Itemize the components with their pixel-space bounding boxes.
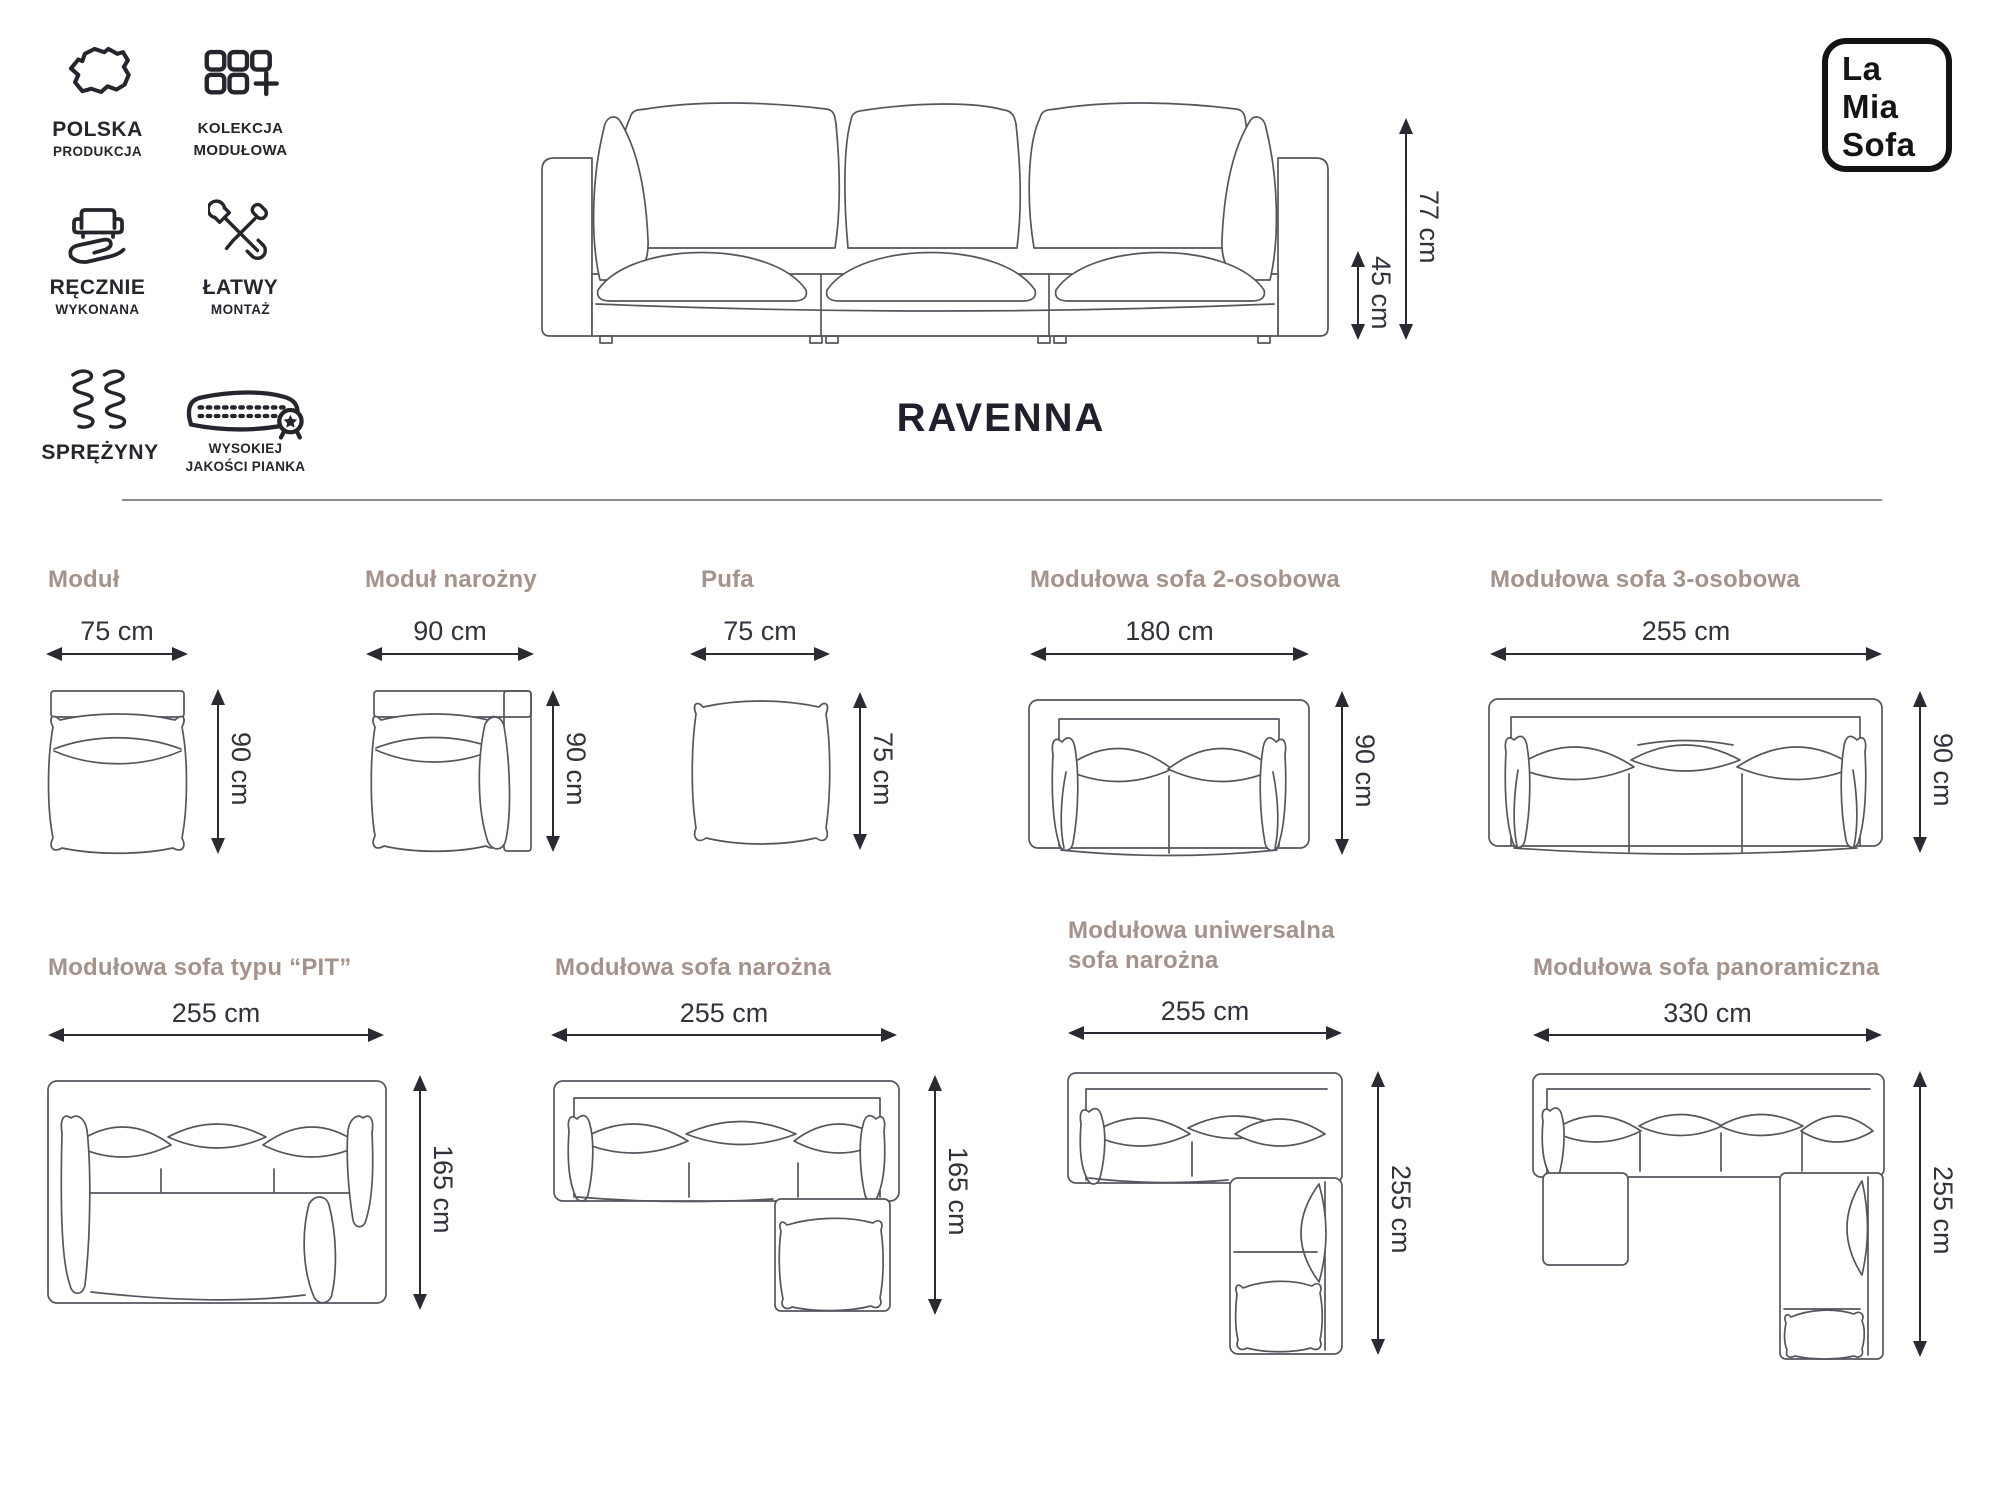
module-height-label: 165 cm (429, 1145, 456, 1234)
width-arrow (1535, 1034, 1880, 1036)
width-arrow (553, 1034, 895, 1036)
product-name: RAVENNA (851, 396, 1151, 441)
feature-label: KOLEKCJA (173, 120, 308, 137)
width-arrow (1070, 1032, 1340, 1034)
module-height-label: 90 cm (227, 732, 254, 806)
seat-height-label: 45 cm (1367, 256, 1394, 330)
module-height-label: 255 cm (1929, 1166, 1956, 1255)
height-arrow (419, 1077, 421, 1308)
brand-logo-line: Mia (1842, 88, 1946, 126)
overall-height-arrow (1405, 120, 1407, 338)
section-divider (122, 499, 1882, 501)
module-width-label: 180 cm (1032, 616, 1307, 647)
module-title: Modułowa sofa 3-osobowa (1490, 565, 1800, 595)
module-width-label: 75 cm (48, 616, 186, 647)
brand-logo-line: La (1842, 50, 1946, 88)
module-height-label: 165 cm (944, 1147, 971, 1236)
module-diagram (45, 690, 190, 857)
hand-sofa-icon (62, 198, 134, 270)
width-arrow (48, 653, 186, 655)
poland-map-icon (58, 44, 136, 114)
seat-height-arrow (1357, 253, 1359, 338)
height-arrow (1919, 1073, 1921, 1355)
module-diagram (690, 692, 833, 850)
module-width-label: 255 cm (553, 998, 895, 1029)
spec-sheet: POLSKA PRODUKCJA KOLEKCJA MODUŁOWA RĘCZN… (0, 0, 2000, 1500)
feature-label: ŁATWY (173, 276, 308, 300)
height-arrow (859, 694, 861, 848)
width-arrow (50, 1034, 382, 1036)
feature-sublabel: WYKONANA (30, 302, 165, 317)
width-arrow (692, 653, 828, 655)
module-width-label: 90 cm (368, 616, 532, 647)
height-arrow (934, 1077, 936, 1313)
module-width-label: 255 cm (1492, 616, 1880, 647)
feature-label: SPRĘŻYNY (28, 441, 172, 465)
module-title: Moduł narożny (365, 565, 537, 595)
width-arrow (1032, 653, 1307, 655)
module-grid-icon (198, 48, 282, 112)
feature-label: WYSOKIEJ (173, 441, 318, 456)
brand-logo: La Mia Sofa (1822, 38, 1952, 172)
height-arrow (1341, 693, 1343, 853)
module-title: Pufa (701, 565, 754, 595)
height-arrow (552, 692, 554, 850)
module-diagram (368, 690, 532, 857)
module-title: Modułowa sofa panoramiczna (1533, 953, 1880, 983)
sofa-front-view-drawing (540, 88, 1330, 346)
springs-icon (66, 366, 132, 436)
width-arrow (368, 653, 532, 655)
brand-logo-line: Sofa (1842, 126, 1946, 164)
feature-sublabel: MODUŁOWA (173, 142, 308, 159)
module-diagram (1488, 690, 1883, 860)
module-diagram (1028, 690, 1310, 862)
module-diagram (1532, 1073, 1885, 1360)
module-width-label: 75 cm (692, 616, 828, 647)
height-arrow (217, 691, 219, 852)
module-width-label: 255 cm (1070, 996, 1340, 1027)
module-diagram (47, 1073, 387, 1310)
module-height-label: 90 cm (1351, 734, 1378, 808)
module-height-label: 90 cm (562, 732, 589, 806)
module-title: Modułowa sofa 2-osobowa (1030, 565, 1340, 595)
module-diagram (553, 1073, 900, 1317)
overall-height-label: 77 cm (1415, 190, 1442, 264)
feature-label: POLSKA (30, 118, 165, 142)
foam-quality-icon (180, 380, 310, 440)
module-diagram (1067, 1072, 1343, 1355)
module-title: Modułowa uniwersalna sofa narożna (1068, 916, 1358, 976)
module-height-label: 90 cm (1929, 733, 1956, 807)
module-title: Modułowa sofa typu “PIT” (48, 953, 351, 983)
module-width-label: 255 cm (50, 998, 382, 1029)
height-arrow (1377, 1073, 1379, 1353)
feature-sublabel: JAKOŚCI PIANKA (163, 459, 328, 474)
module-width-label: 330 cm (1535, 998, 1880, 1029)
tools-icon (208, 198, 274, 270)
module-height-label: 75 cm (869, 732, 896, 806)
feature-sublabel: PRODUKCJA (30, 144, 165, 159)
module-title: Modułowa sofa narożna (555, 953, 831, 983)
width-arrow (1492, 653, 1880, 655)
feature-sublabel: MONTAŻ (173, 302, 308, 317)
module-title: Moduł (48, 565, 120, 595)
height-arrow (1919, 693, 1921, 851)
module-height-label: 255 cm (1387, 1165, 1414, 1254)
feature-label: RĘCZNIE (30, 276, 165, 300)
